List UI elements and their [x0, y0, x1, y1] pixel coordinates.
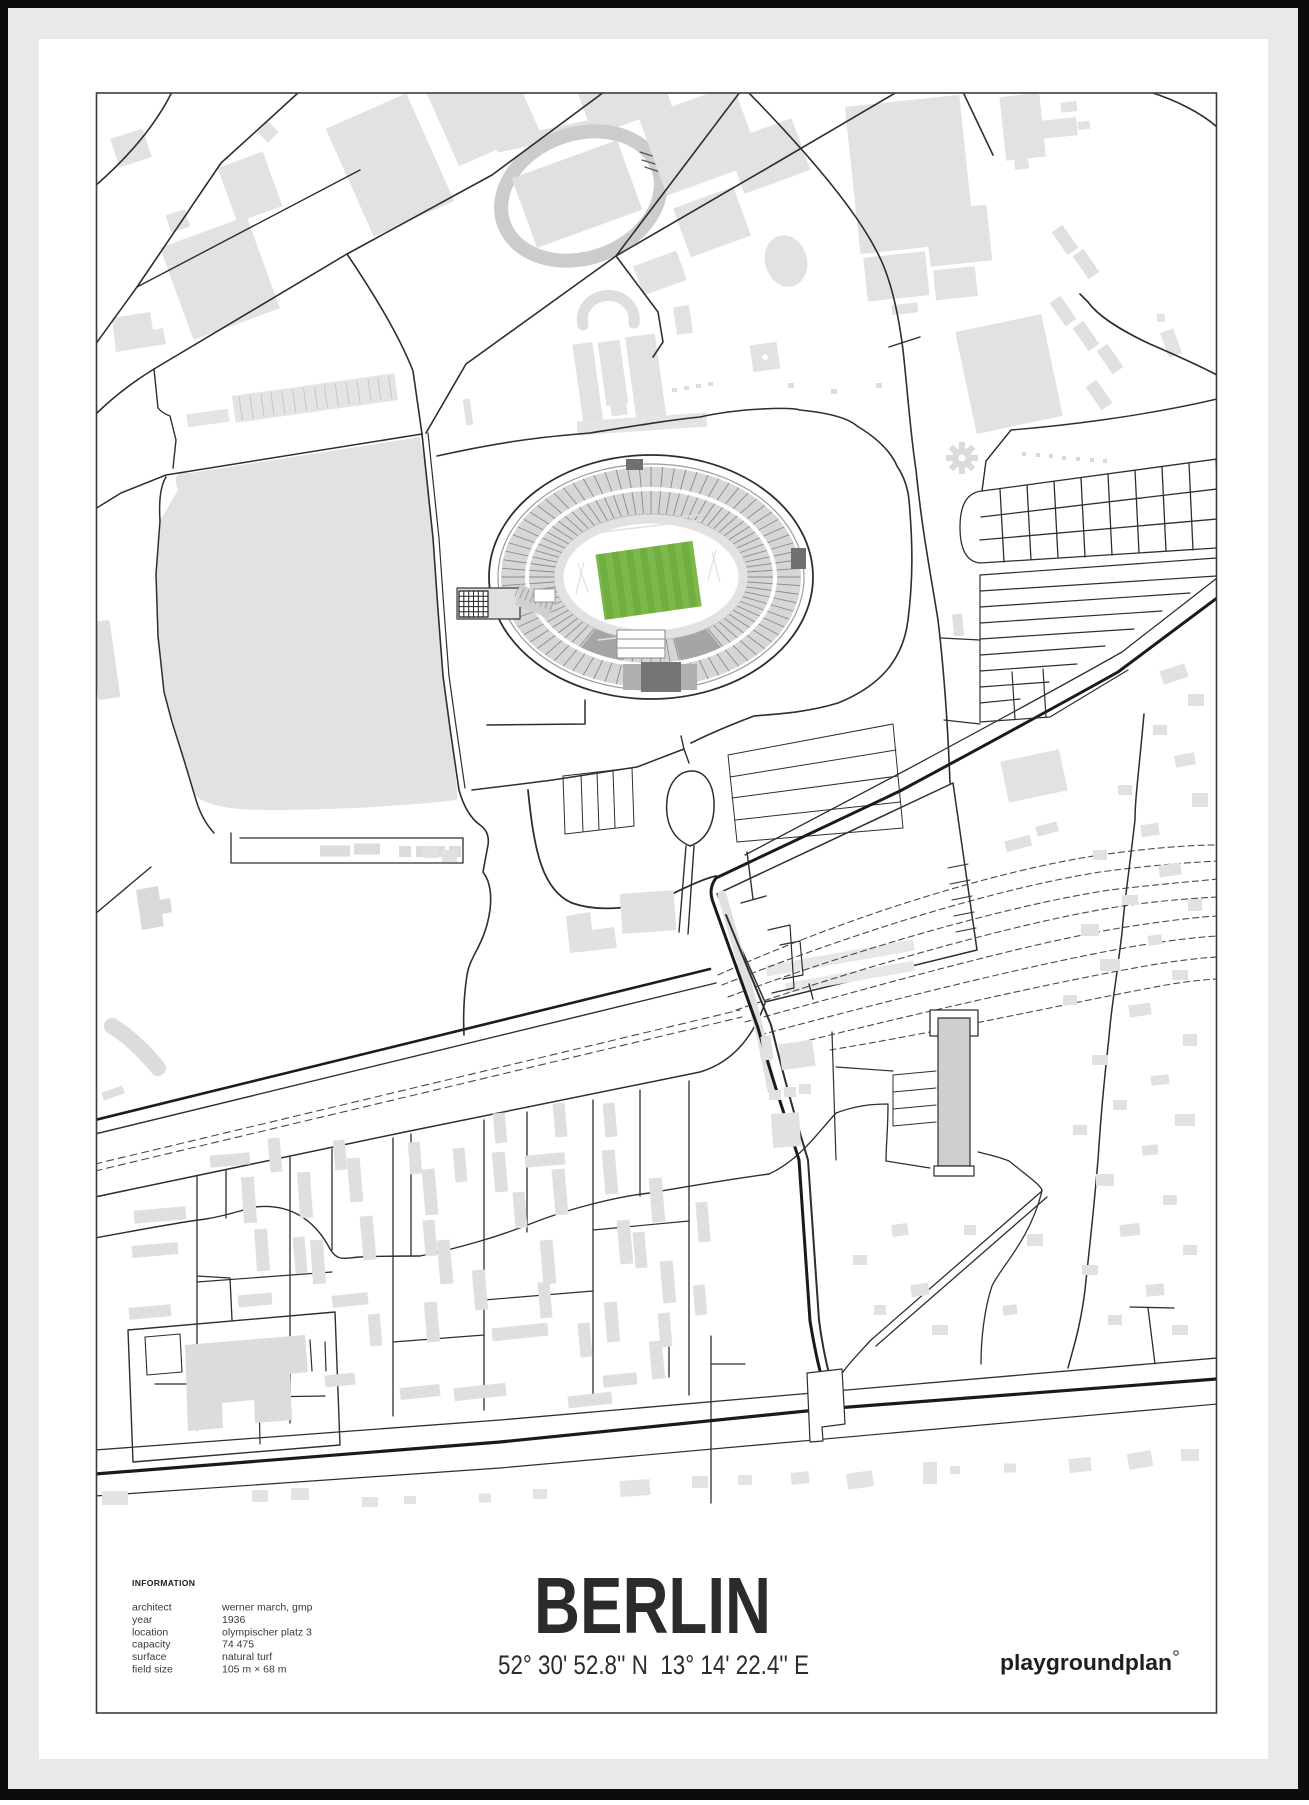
svg-text:BERLIN: BERLIN: [534, 1561, 771, 1650]
svg-text:olympischer platz 3: olympischer platz 3: [222, 1626, 312, 1638]
svg-text:natural turf: natural turf: [222, 1651, 272, 1663]
svg-text:105 m × 68 m: 105 m × 68 m: [222, 1664, 287, 1676]
svg-text:surface: surface: [132, 1651, 167, 1663]
svg-text:INFORMATION: INFORMATION: [132, 1578, 195, 1588]
svg-text:architect: architect: [132, 1602, 172, 1614]
svg-text:location: location: [132, 1626, 168, 1638]
svg-text:field size: field size: [132, 1664, 173, 1676]
svg-text:year: year: [132, 1614, 153, 1626]
svg-text:52° 30' 52.8'' N 13° 14' 22.4: 52° 30' 52.8'' N 13° 14' 22.4'' E: [498, 1650, 809, 1680]
svg-text:1936: 1936: [222, 1614, 246, 1626]
svg-text:werner march, gmp: werner march, gmp: [221, 1602, 313, 1614]
svg-text:capacity: capacity: [132, 1639, 171, 1651]
svg-text:playgroundplan: playgroundplan: [1000, 1650, 1172, 1675]
svg-text:74 475: 74 475: [222, 1639, 254, 1651]
